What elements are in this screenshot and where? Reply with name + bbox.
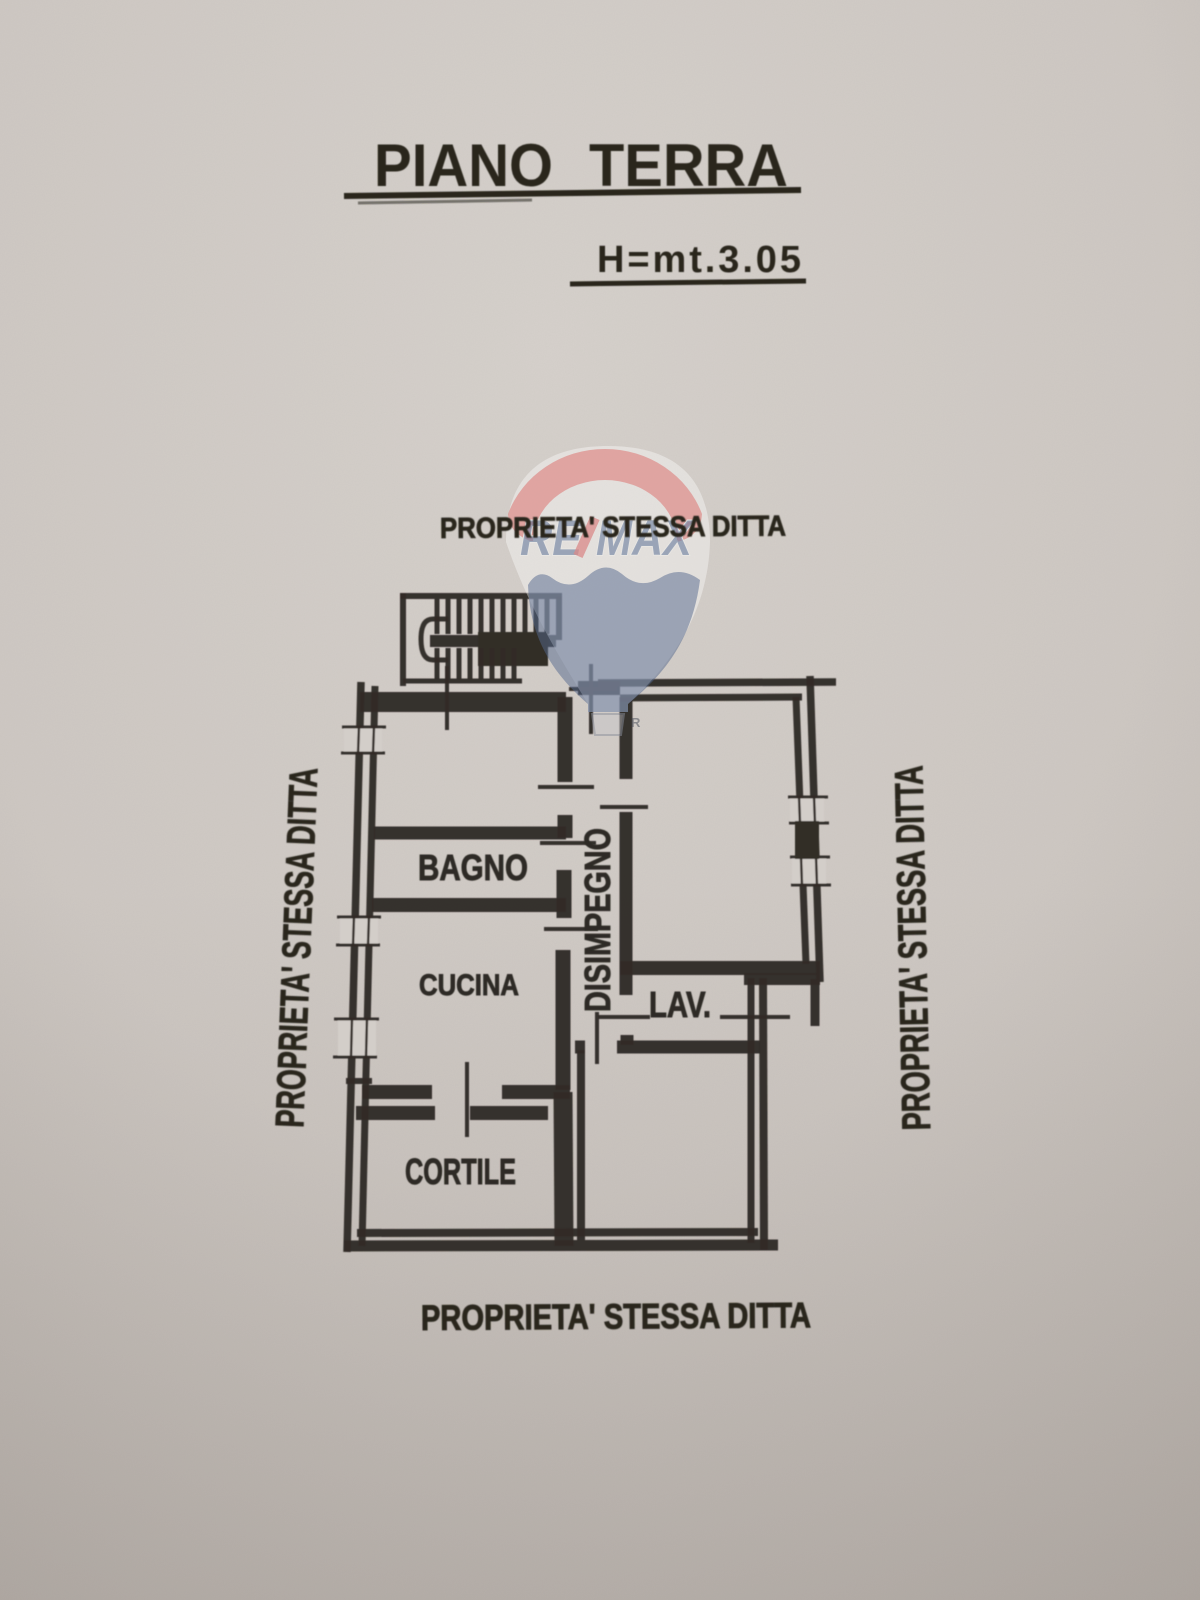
svg-text:PIANO: PIANO <box>374 132 553 199</box>
svg-text:BAGNO: BAGNO <box>418 847 528 888</box>
svg-text:LAV.: LAV. <box>649 984 711 1025</box>
svg-text:H=mt.3.05: H=mt.3.05 <box>597 239 801 281</box>
svg-text:CUCINA: CUCINA <box>419 969 519 1002</box>
svg-text:R: R <box>631 715 641 730</box>
svg-text:PROPRIETA' STESSA DITTA: PROPRIETA' STESSA DITTA <box>887 765 939 1131</box>
svg-text:DISIMPEGNO: DISIMPEGNO <box>577 828 618 1012</box>
svg-text:PROPRIETA' STESSA DITTA: PROPRIETA' STESSA DITTA <box>440 511 786 545</box>
svg-text:PROPRIETA' STESSA DITTA: PROPRIETA' STESSA DITTA <box>421 1296 811 1338</box>
svg-text:CORTILE: CORTILE <box>405 1151 516 1192</box>
